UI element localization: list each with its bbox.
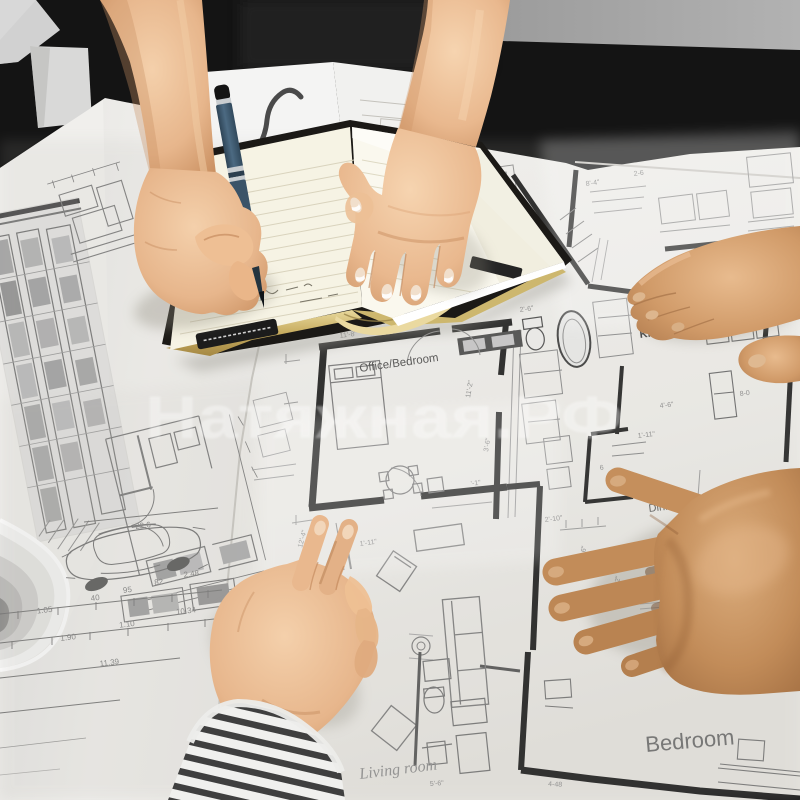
svg-text:Натяжная.РФ: Натяжная.РФ — [145, 384, 623, 451]
